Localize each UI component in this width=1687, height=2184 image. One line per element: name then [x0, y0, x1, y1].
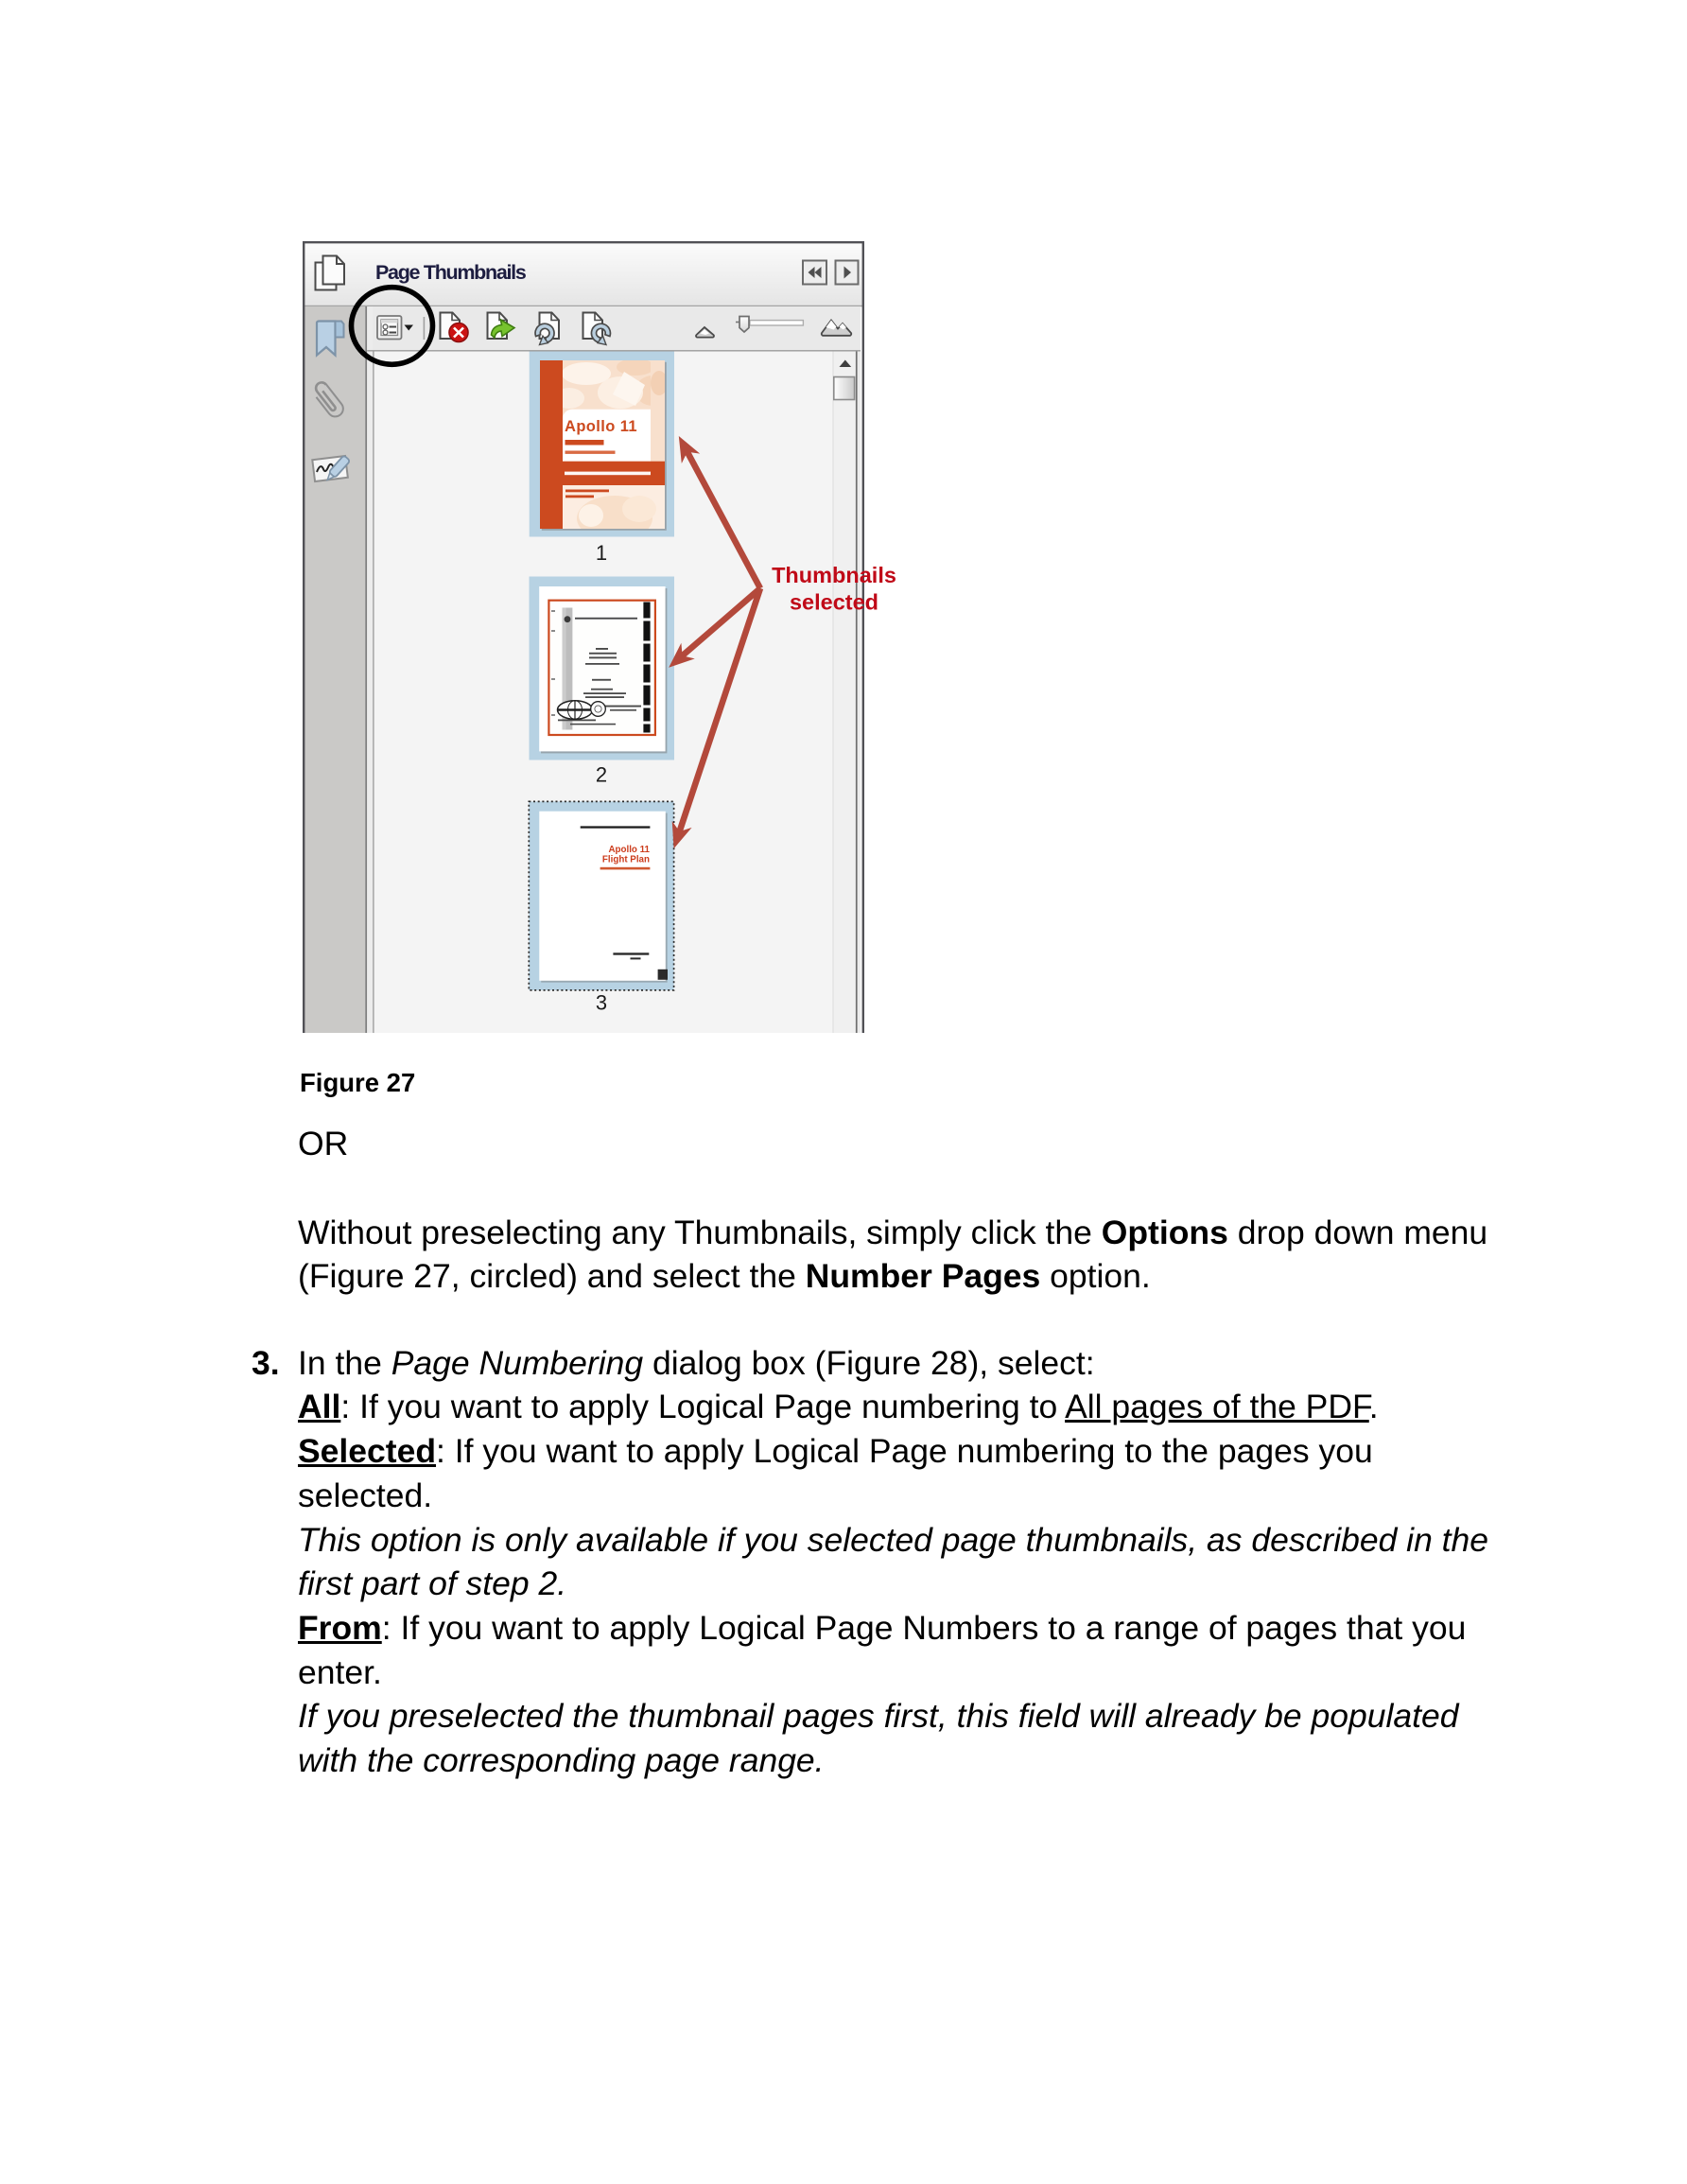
svg-text:3: 3 [596, 991, 607, 1015]
svg-text:1: 1 [596, 541, 607, 565]
svg-text:Thumbnails: Thumbnails [772, 563, 896, 587]
svg-text:Apollo 11: Apollo 11 [608, 845, 650, 855]
svg-text:Flight Plan: Flight Plan [602, 855, 650, 865]
svg-text:selected: selected [790, 590, 878, 615]
svg-text:Page Thumbnails: Page Thumbnails [375, 261, 527, 284]
svg-text:2: 2 [596, 763, 607, 787]
svg-text:Apollo 11: Apollo 11 [565, 418, 637, 435]
